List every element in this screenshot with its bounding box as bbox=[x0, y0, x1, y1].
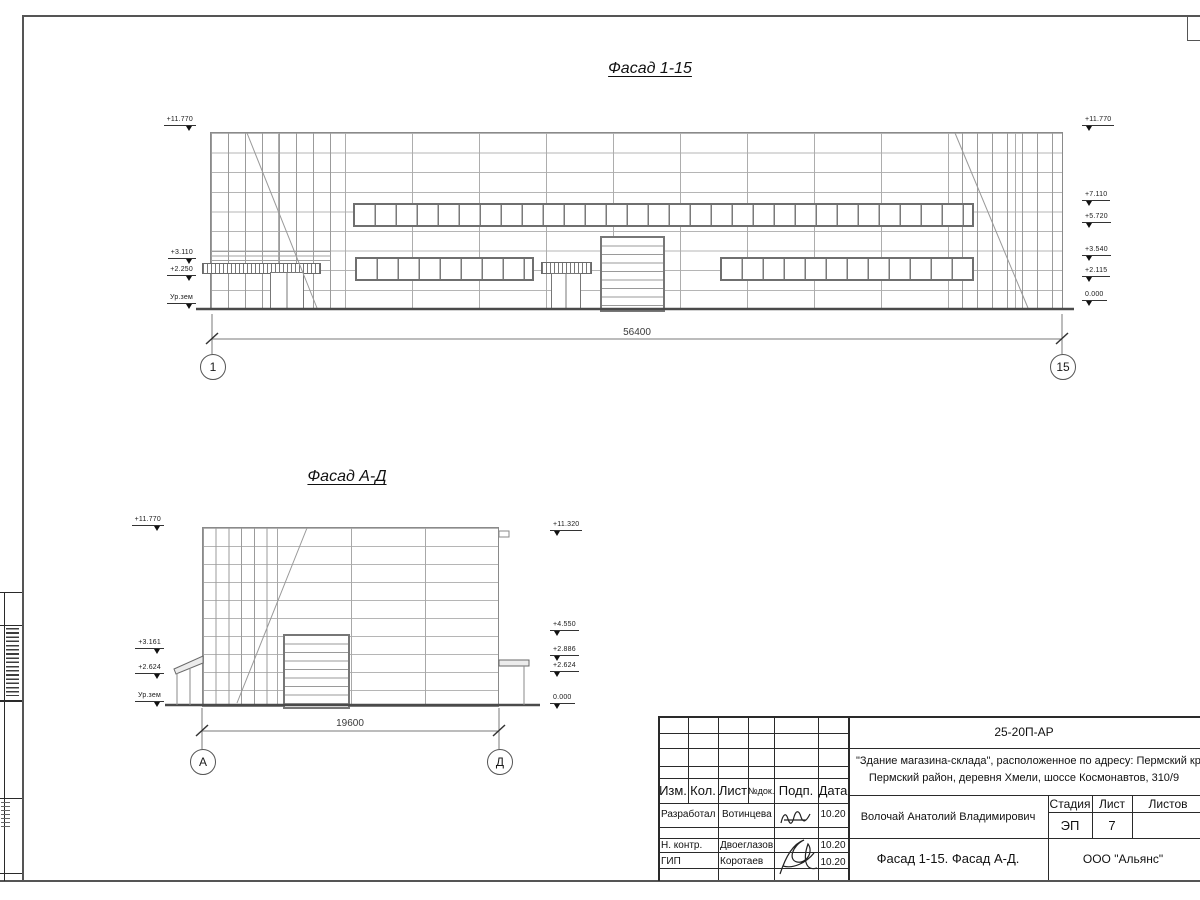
side-stamp-divider bbox=[4, 592, 5, 881]
tb-line bbox=[658, 827, 848, 828]
elevation-mark: +11.770 bbox=[116, 516, 164, 531]
row-role: ГИП bbox=[661, 856, 681, 867]
tb-line bbox=[658, 838, 1200, 839]
tb-line bbox=[658, 716, 660, 881]
stage-value: ЭП bbox=[1048, 818, 1092, 833]
side-canopy-left bbox=[174, 656, 203, 674]
row-name: Коротаев bbox=[720, 856, 763, 867]
elevation-triangle-icon bbox=[154, 674, 160, 679]
elevation-mark: +2.250 bbox=[148, 266, 196, 281]
row-name: Вотинцева bbox=[722, 809, 772, 820]
tb-line bbox=[658, 778, 848, 779]
col-data: Дата bbox=[818, 783, 848, 798]
window-ribbon-lower-right bbox=[720, 257, 974, 281]
elevation-mark: +3.540 bbox=[1082, 246, 1130, 261]
row-date: 10.20 bbox=[818, 857, 848, 868]
elevation-triangle-icon bbox=[554, 531, 560, 536]
sheet-value: 7 bbox=[1092, 818, 1132, 833]
tb-line bbox=[818, 716, 819, 880]
tb-line bbox=[658, 733, 848, 734]
sheet-label: Лист bbox=[1092, 797, 1132, 811]
tb-line bbox=[1048, 812, 1200, 813]
side-stamp-rotated-text-small bbox=[1, 802, 10, 830]
fine-glazing-right bbox=[962, 133, 1062, 309]
sectional-gate bbox=[283, 634, 350, 709]
elevation-mark: +2.886 bbox=[550, 646, 598, 661]
sheets-label: Листов bbox=[1132, 797, 1200, 811]
stage-label: Стадия bbox=[1048, 797, 1092, 811]
elevation-mark: 0.000 bbox=[550, 694, 598, 709]
side-stamp-h4 bbox=[0, 798, 22, 799]
elevation-triangle-icon bbox=[186, 259, 192, 264]
elevation-mark: +2.624 bbox=[550, 662, 598, 677]
tb-line bbox=[658, 766, 848, 767]
roof-bracket bbox=[499, 531, 509, 537]
frame-top bbox=[22, 15, 1200, 17]
elevation-mark: +5.720 bbox=[1082, 213, 1130, 228]
tb-line bbox=[658, 852, 848, 853]
elevation-mark: 0.000 bbox=[1082, 291, 1130, 306]
elevation-mark: Ур.зем bbox=[116, 692, 164, 707]
grid-axis-bubble-d: Д bbox=[487, 749, 513, 775]
frame-bottom bbox=[0, 880, 1200, 882]
elevation-mark: +2.624 bbox=[116, 664, 164, 679]
dimension-19600: 19600 bbox=[313, 718, 387, 729]
col-izm: Изм. bbox=[658, 783, 688, 798]
elevation-triangle-icon bbox=[554, 656, 560, 661]
tb-line bbox=[718, 716, 719, 880]
tb-line bbox=[658, 748, 1200, 749]
entrance-door-left bbox=[270, 272, 304, 309]
elevation-mark: +7.110 bbox=[1082, 191, 1130, 206]
facade-1-15-title: Фасад 1-15 bbox=[575, 60, 725, 78]
elevation-triangle-icon bbox=[186, 126, 192, 131]
elevation-mark: +11.770 bbox=[148, 116, 196, 131]
project-description-line2: Пермский район, деревня Хмели, шоссе Кос… bbox=[848, 772, 1200, 784]
elevation-triangle-icon bbox=[154, 649, 160, 654]
elevation-triangle-icon bbox=[554, 631, 560, 636]
sectional-gate bbox=[600, 236, 665, 312]
elevation-triangle-icon bbox=[1086, 301, 1092, 306]
elevation-triangle-icon bbox=[186, 276, 192, 281]
tb-line bbox=[774, 716, 775, 880]
elevation-mark: +4.550 bbox=[550, 621, 598, 636]
project-description-line1: "Здание магазина-склада", расположенное … bbox=[856, 755, 1200, 767]
elevation-mark: +3.110 bbox=[148, 249, 196, 264]
row-role: Н. контр. bbox=[661, 840, 702, 851]
elevation-triangle-icon bbox=[554, 672, 560, 677]
window-ribbon-upper bbox=[353, 203, 974, 227]
facade-a-d-building bbox=[202, 527, 499, 707]
company-name: ООО "Альянс" bbox=[1048, 852, 1198, 866]
facade-a-d-title: Фасад А-Д bbox=[277, 468, 417, 486]
elevation-triangle-icon bbox=[154, 702, 160, 707]
row-role: Разработал bbox=[661, 809, 715, 820]
elevation-mark: Ур.зем bbox=[148, 294, 196, 309]
entrance-door-middle bbox=[551, 273, 581, 309]
fine-glazing-left bbox=[203, 528, 279, 706]
side-stamp-h5 bbox=[0, 873, 22, 874]
corner-box-bottom bbox=[1187, 40, 1200, 41]
col-kol: Кол. bbox=[688, 783, 718, 798]
grid-axis-bubble-1: 1 bbox=[200, 354, 226, 380]
elevation-triangle-icon bbox=[1086, 126, 1092, 131]
author-name: Волочай Анатолий Владимирович bbox=[848, 811, 1048, 823]
col-ndok: №док. bbox=[748, 786, 774, 796]
dimension-56400: 56400 bbox=[600, 327, 674, 338]
doc-number: 25-20П-АР bbox=[848, 725, 1200, 739]
side-stamp-h1 bbox=[0, 592, 22, 593]
tb-line bbox=[658, 868, 848, 869]
side-stamp-h2 bbox=[0, 625, 22, 626]
row-name: Двоеглазов bbox=[720, 840, 773, 851]
elevation-triangle-icon bbox=[186, 304, 192, 309]
window-ribbon-lower-left bbox=[355, 257, 534, 281]
elevation-triangle-icon bbox=[554, 704, 560, 709]
elevation-mark: +3.161 bbox=[116, 639, 164, 654]
tb-line bbox=[848, 795, 1200, 796]
elevation-mark: +11.320 bbox=[550, 521, 598, 536]
frame-left bbox=[22, 15, 24, 881]
grid-axis-bubble-15: 15 bbox=[1050, 354, 1076, 380]
col-podp: Подп. bbox=[774, 783, 818, 798]
row-date: 10.20 bbox=[818, 840, 848, 851]
elevation-mark: +11.770 bbox=[1082, 116, 1130, 131]
elevation-mark: +2.115 bbox=[1082, 267, 1130, 282]
side-stamp-h3 bbox=[0, 700, 22, 702]
drawing-sheet: Фасад 1-15 +11.770 +3.110 +2.250 Ур.зем … bbox=[0, 0, 1200, 900]
col-list: Лист bbox=[718, 783, 748, 798]
elevation-triangle-icon bbox=[1086, 277, 1092, 282]
corner-box-left bbox=[1187, 15, 1188, 40]
elevation-triangle-icon bbox=[154, 526, 160, 531]
tb-line bbox=[658, 716, 1200, 718]
tb-line bbox=[658, 803, 848, 804]
drawing-title: Фасад 1-15. Фасад А-Д. bbox=[848, 851, 1048, 866]
grid-axis-bubble-a: А bbox=[190, 749, 216, 775]
elevation-triangle-icon bbox=[1086, 223, 1092, 228]
side-canopy-right bbox=[499, 660, 529, 666]
elevation-triangle-icon bbox=[1086, 256, 1092, 261]
signature-votintseva bbox=[781, 812, 810, 824]
elevation-triangle-icon bbox=[1086, 201, 1092, 206]
side-stamp-rotated-text bbox=[6, 628, 19, 696]
row-date: 10.20 bbox=[818, 809, 848, 820]
